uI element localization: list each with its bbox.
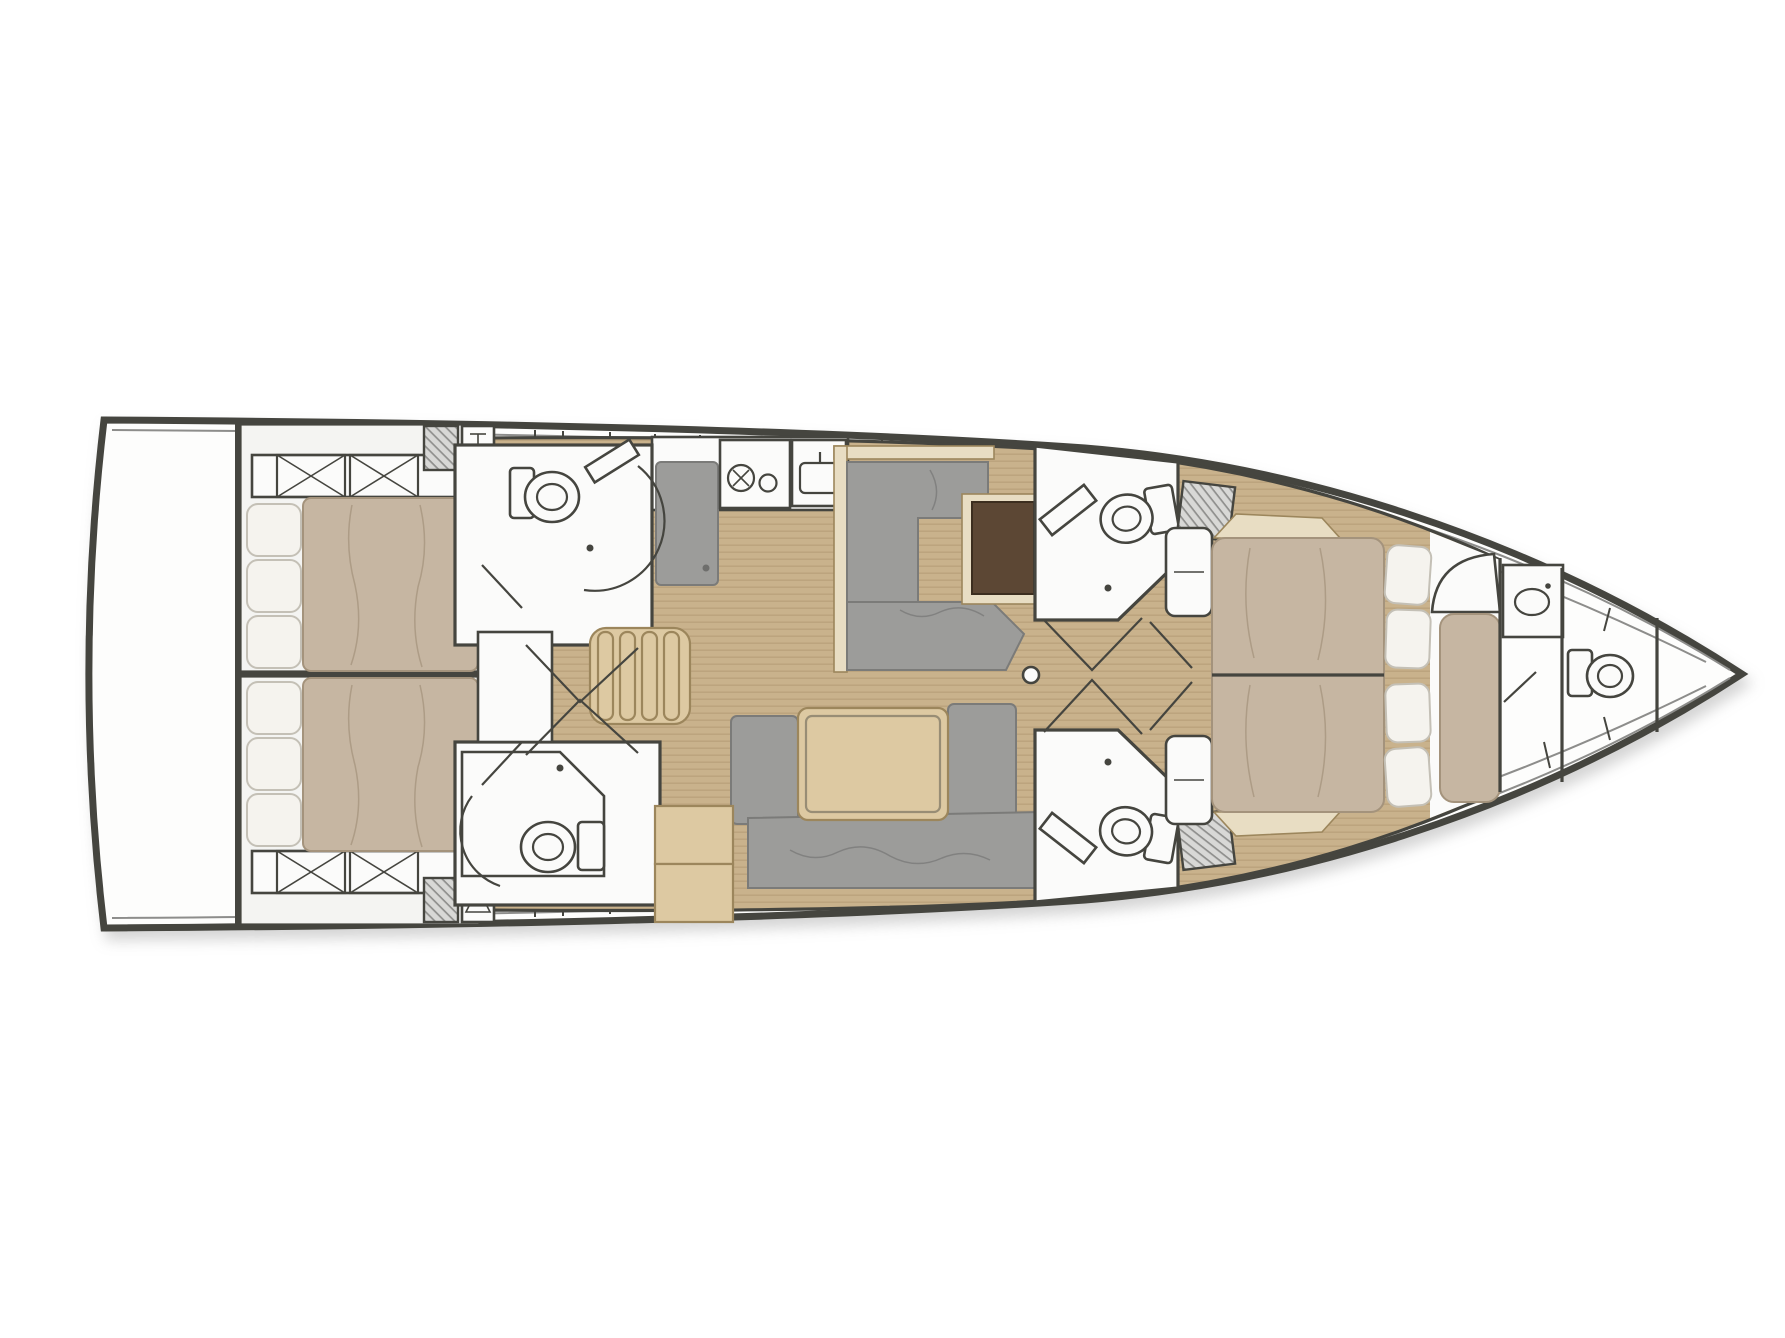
dining-table-icon <box>798 708 948 820</box>
fridge-handle <box>703 565 710 572</box>
galley-cabinet <box>655 806 733 922</box>
aft-starboard-head <box>455 742 660 905</box>
pillow-icon <box>247 682 301 846</box>
floor-plan-canvas <box>0 0 1785 1338</box>
toilet-icon <box>510 468 579 522</box>
double-bed-icon <box>303 498 478 671</box>
hanging-locker-icon <box>424 878 458 922</box>
bed-head-trim <box>1214 514 1340 538</box>
sink-icon <box>1503 565 1563 637</box>
pillow-icon <box>247 504 301 668</box>
companionway-stairs-icon <box>590 628 690 724</box>
yacht-floor-plan <box>0 0 1785 1338</box>
vanity-seat-back <box>1440 614 1500 802</box>
aft-port-head <box>455 440 664 645</box>
hanging-locker-icon <box>424 426 458 470</box>
mast-icon <box>1023 667 1039 683</box>
toilet-icon <box>521 822 604 872</box>
engine-hatch-icon <box>478 632 552 742</box>
sofa-icon <box>748 812 1074 888</box>
stove-burner-icon <box>720 440 790 508</box>
sofa-icon <box>731 716 798 824</box>
bed-head-trim <box>1214 812 1340 836</box>
chart-table-icon <box>972 502 1034 594</box>
sofa-icon <box>948 704 1016 822</box>
sofa-icon <box>847 602 1024 670</box>
double-bed-icon <box>303 678 478 851</box>
